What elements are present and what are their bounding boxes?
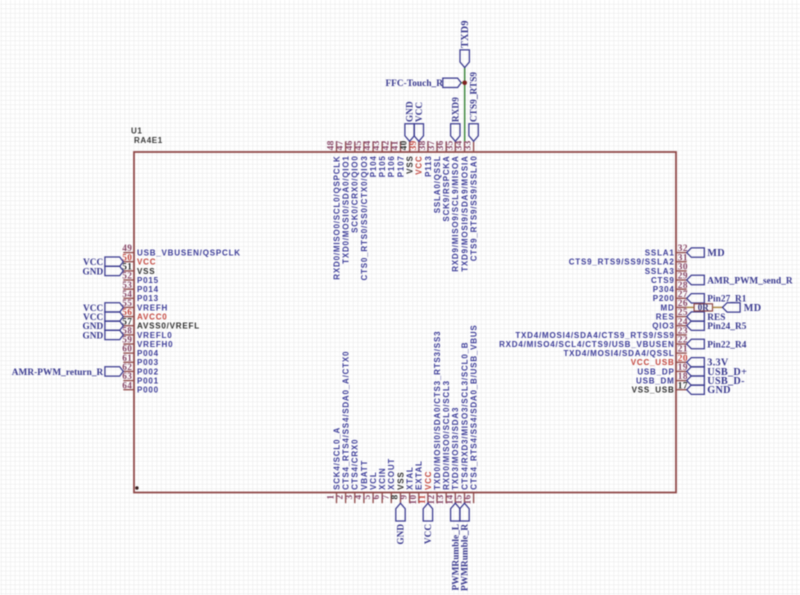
svg-text:P200: P200 — [653, 294, 675, 303]
svg-text:CTS4_RTS4/SS4/SDA0_A/CTX0: CTS4_RTS4/SS4/SDA0_A/CTX0 — [342, 351, 351, 490]
svg-text:EXTAL: EXTAL — [415, 460, 424, 490]
svg-text:MD: MD — [707, 248, 725, 259]
svg-text:AMR_PWM_send_R: AMR_PWM_send_R — [707, 276, 793, 286]
svg-text:SSLA1: SSLA1 — [645, 249, 675, 258]
svg-text:CTS9_RTS9/SS9/SSLA2: CTS9_RTS9/SS9/SSLA2 — [569, 258, 675, 267]
svg-text:33: 33 — [464, 140, 474, 150]
svg-text:PWMRumble_R: PWMRumble_R — [461, 524, 471, 591]
svg-text:USB_DP: USB_DP — [637, 367, 674, 376]
svg-text:64: 64 — [122, 381, 132, 391]
svg-text:CTS4_RTS4/SS4/SDA0_B/USB_VBUS: CTS4_RTS4/SS4/SDA0_B/USB_VBUS — [470, 324, 479, 489]
svg-text:Pin24_R5: Pin24_R5 — [707, 322, 746, 332]
svg-text:XTAL: XTAL — [406, 466, 415, 490]
svg-text:AVSS0/VREFL: AVSS0/VREFL — [137, 322, 200, 331]
svg-text:TXD9: TXD9 — [460, 20, 471, 48]
svg-text:CTS4/RXD3/MISO3/SCL3/SCL0_B: CTS4/RXD3/MISO3/SCL3/SCL0_B — [460, 342, 469, 490]
svg-text:USB_DM: USB_DM — [636, 377, 675, 386]
svg-text:VCC: VCC — [424, 471, 433, 490]
svg-text:VREFH: VREFH — [137, 303, 168, 312]
svg-text:VCC: VCC — [415, 102, 425, 122]
svg-text:P000: P000 — [137, 386, 159, 395]
svg-text:RXD4/MISO4/SCL4/CTS9/USB_VBUSE: RXD4/MISO4/SCL4/CTS9/USB_VBUSEN — [499, 340, 675, 349]
svg-text:QIO3: QIO3 — [652, 322, 674, 331]
svg-text:SSLA3: SSLA3 — [645, 267, 675, 276]
svg-text:TXD0/MOSI0/SDA0/QIO1: TXD0/MOSI0/SDA0/QIO1 — [342, 155, 351, 263]
svg-text:RXD0/MISO0/SCL0/QSPCLK: RXD0/MISO0/SCL0/QSPCLK — [332, 155, 341, 279]
svg-text:GND: GND — [82, 267, 103, 277]
svg-text:P003: P003 — [137, 358, 159, 367]
svg-text:0R: 0R — [698, 303, 710, 313]
svg-text:GND: GND — [397, 524, 407, 545]
svg-text:RXD9/MISO9/SCL9/MISOA: RXD9/MISO9/SCL9/MISOA — [451, 155, 460, 271]
svg-text:TXD0/MOSI0/SDA0/CTS3_RTS3/SS3: TXD0/MOSI0/SDA0/CTS3_RTS3/SS3 — [433, 331, 442, 490]
svg-text:FFC-Touch_R: FFC-Touch_R — [385, 79, 443, 89]
svg-text:TXD4/MOSI4/SDA4/QSSL: TXD4/MOSI4/SDA4/QSSL — [563, 349, 674, 358]
svg-text:CTS9_RTS9: CTS9_RTS9 — [470, 72, 480, 123]
svg-text:USB_VBUSEN/QSPCLK: USB_VBUSEN/QSPCLK — [137, 249, 241, 258]
svg-text:Pin22_R4: Pin22_R4 — [707, 340, 746, 350]
svg-text:P106: P106 — [387, 155, 396, 177]
svg-text:P107: P107 — [396, 155, 405, 177]
svg-text:SCK9/RSPCKA: SCK9/RSPCKA — [442, 155, 451, 221]
svg-text:SCK4/SCL0_A: SCK4/SCL0_A — [332, 427, 341, 490]
svg-text:GND: GND — [82, 331, 103, 341]
svg-text:VCC: VCC — [415, 155, 424, 174]
svg-text:TXD4/MOSI4/SDA4/CTS9_RTS9/SS9: TXD4/MOSI4/SDA4/CTS9_RTS9/SS9 — [515, 331, 674, 340]
svg-text:U1: U1 — [131, 126, 142, 135]
svg-text:VCC: VCC — [424, 524, 434, 544]
svg-text:VBATT: VBATT — [360, 460, 369, 490]
svg-text:P014: P014 — [137, 285, 159, 294]
svg-text:VSS: VSS — [406, 155, 415, 173]
svg-text:P002: P002 — [137, 367, 159, 376]
svg-text:RA4E1: RA4E1 — [134, 136, 163, 145]
svg-text:P004: P004 — [137, 349, 159, 358]
svg-text:RES: RES — [656, 313, 675, 322]
svg-text:MD: MD — [661, 303, 675, 312]
svg-text:VCL: VCL — [369, 471, 378, 489]
svg-text:CTS9: CTS9 — [651, 276, 675, 285]
svg-text:GND: GND — [707, 385, 731, 396]
svg-text:MD: MD — [744, 303, 762, 314]
svg-text:P001: P001 — [137, 377, 159, 386]
svg-text:RXD0/MISO0/SCL0/SCL3: RXD0/MISO0/SCL0/SCL3 — [442, 380, 451, 490]
svg-text:XCIN: XCIN — [378, 468, 387, 490]
svg-text:TXD3/MOSI3/SDA3: TXD3/MOSI3/SDA3 — [451, 407, 460, 490]
svg-text:TXD9/MOSI9/SDA9/MOSIA: TXD9/MOSI9/SDA9/MOSIA — [460, 155, 469, 271]
svg-text:P104: P104 — [369, 155, 378, 177]
svg-text:SCK0/CRX0/QIO0: SCK0/CRX0/QIO0 — [351, 155, 360, 232]
svg-text:CTS9_RTS9/SS9/SSLA0: CTS9_RTS9/SS9/SSLA0 — [470, 155, 479, 261]
svg-text:VCC_USB: VCC_USB — [631, 358, 675, 367]
svg-text:VCC: VCC — [137, 258, 156, 267]
svg-text:RXD9: RXD9 — [451, 97, 461, 122]
svg-text:VREFL0: VREFL0 — [137, 331, 172, 340]
svg-text:XCOUT: XCOUT — [387, 458, 396, 490]
svg-text:P015: P015 — [137, 276, 159, 285]
svg-text:VSS: VSS — [396, 471, 405, 489]
svg-text:CTS4/CRX0: CTS4/CRX0 — [351, 439, 360, 490]
svg-text:P113: P113 — [424, 155, 433, 176]
svg-text:P105: P105 — [378, 155, 387, 177]
svg-text:AMR-PWM_return_R: AMR-PWM_return_R — [12, 368, 104, 378]
svg-text:P013: P013 — [137, 294, 159, 303]
svg-text:VSS: VSS — [137, 267, 155, 276]
svg-text:CTS0_RTS0/SS0/CTX0/QIO3: CTS0_RTS0/SS0/CTX0/QIO3 — [360, 155, 369, 280]
svg-text:VSS_USB: VSS_USB — [632, 386, 675, 395]
svg-text:AVCC0: AVCC0 — [137, 313, 168, 322]
svg-text:SSLA0/QSSL: SSLA0/QSSL — [433, 155, 442, 213]
svg-text:P304: P304 — [653, 285, 675, 294]
svg-text:VREFH0: VREFH0 — [137, 340, 173, 349]
